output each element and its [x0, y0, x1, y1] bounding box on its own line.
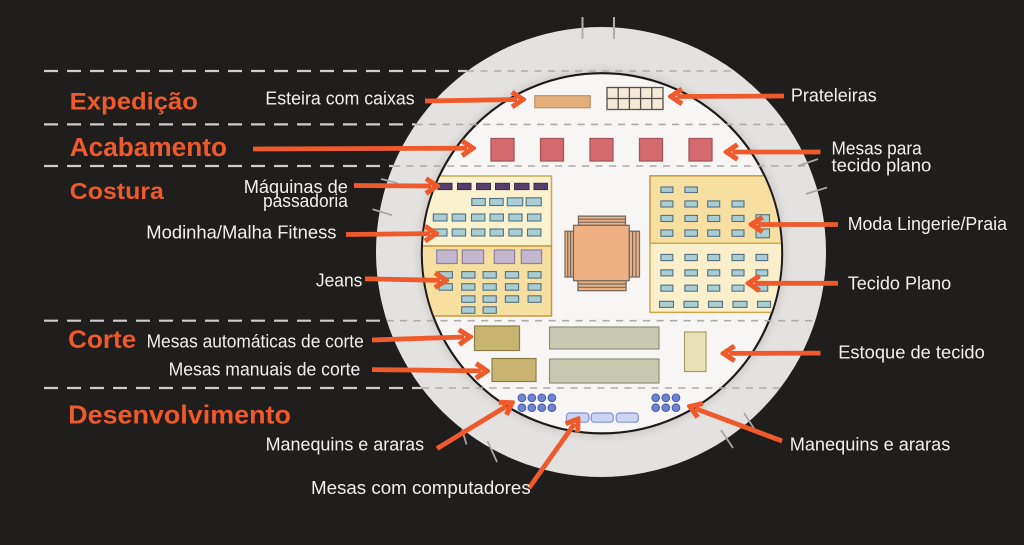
svg-text:Mesas automáticas de corte: Mesas automáticas de corte: [147, 330, 364, 351]
svg-text:Modinha/Malha Fitness: Modinha/Malha Fitness: [146, 222, 336, 243]
svg-text:Mesas com computadores: Mesas com computadores: [311, 477, 531, 498]
svg-text:Acabamento: Acabamento: [70, 132, 227, 162]
svg-text:passadoria: passadoria: [263, 190, 349, 211]
svg-text:Tecido Plano: Tecido Plano: [848, 273, 952, 294]
svg-text:Moda Lingerie/Praia: Moda Lingerie/Praia: [848, 213, 1008, 234]
svg-text:Expedição: Expedição: [70, 89, 198, 116]
svg-text:Esteira com caixas: Esteira com caixas: [265, 87, 414, 108]
svg-text:Manequins e araras: Manequins e araras: [790, 433, 951, 454]
svg-text:Estoque de tecido: Estoque de tecido: [838, 342, 985, 363]
svg-text:Mesas manuais de corte: Mesas manuais de corte: [169, 358, 361, 379]
svg-text:Manequins e araras: Manequins e araras: [266, 434, 425, 455]
svg-text:Corte: Corte: [68, 326, 136, 354]
svg-text:Jeans: Jeans: [316, 269, 363, 290]
svg-text:Prateleiras: Prateleiras: [791, 85, 877, 106]
svg-text:tecido plano: tecido plano: [832, 155, 932, 176]
svg-text:Desenvolvimento: Desenvolvimento: [68, 400, 291, 430]
svg-text:Costura: Costura: [70, 178, 165, 204]
